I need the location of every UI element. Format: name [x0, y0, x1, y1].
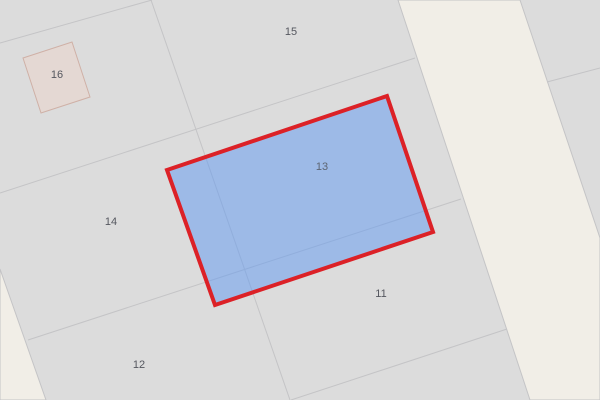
parcel-label-15: 15 [285, 26, 297, 38]
parcel-label-11: 11 [375, 288, 386, 300]
parcel-label-13: 13 [316, 161, 328, 173]
parcel-label-16: 16 [51, 69, 63, 81]
map-canvas[interactable]: 161514131211 [0, 0, 600, 400]
map-viewport[interactable]: 161514131211 [0, 0, 600, 400]
parcel-label-12: 12 [133, 359, 145, 371]
parcel-label-14: 14 [105, 216, 117, 228]
